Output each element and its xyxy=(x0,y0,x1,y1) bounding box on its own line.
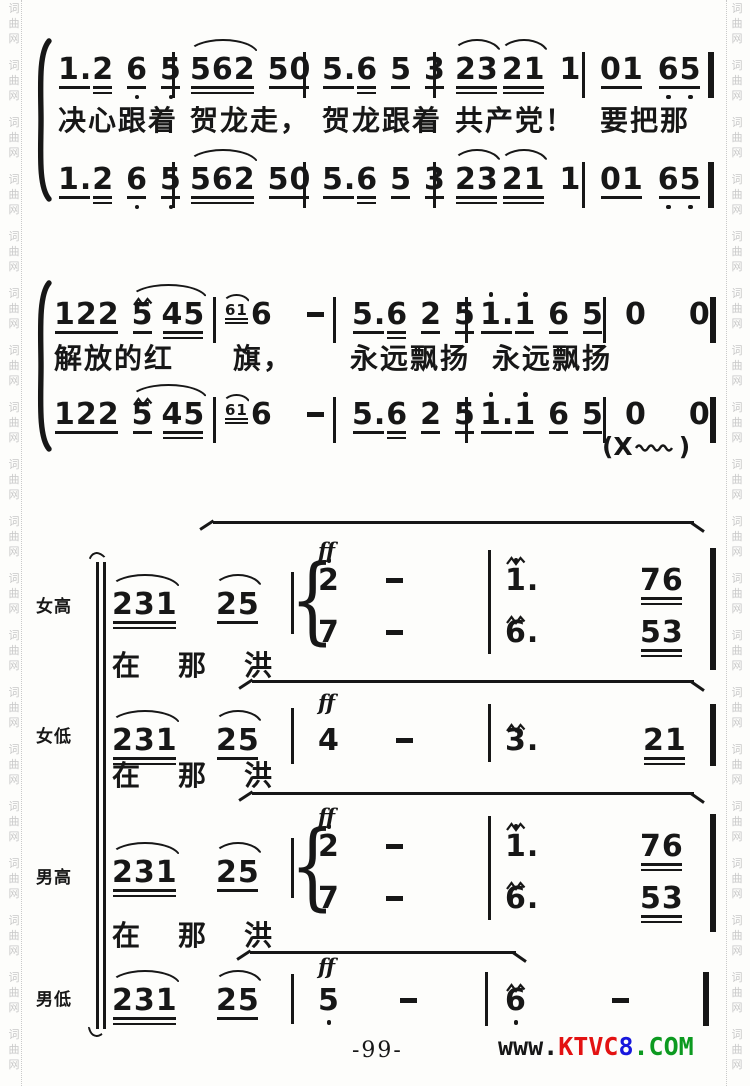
barline xyxy=(433,162,436,208)
phrase-line-right-hook xyxy=(690,680,705,691)
note-digit: 1 xyxy=(480,300,502,330)
watermark-char-left: 词 xyxy=(6,459,22,471)
music-row: 2 5 xyxy=(216,858,260,888)
grace-slur xyxy=(222,394,251,405)
note-digit: 0 xyxy=(290,165,312,195)
watermark-char-right: 曲 xyxy=(729,531,745,543)
watermark-char-right: 网 xyxy=(729,1059,745,1071)
phrase-extension-line xyxy=(252,680,694,683)
watermark-char-right: 网 xyxy=(729,831,745,843)
duration-underline xyxy=(127,86,146,89)
note-text: 5 3 xyxy=(640,881,684,916)
note-digit: 2 xyxy=(112,726,134,756)
note-digit: 2 xyxy=(216,590,238,620)
note-digit: 5 xyxy=(238,590,260,620)
choir-lyric: 在 xyxy=(112,914,140,954)
watermark-char-left: 网 xyxy=(6,1002,22,1014)
note-digit: 6 xyxy=(126,55,148,85)
note-digit: 6 xyxy=(251,400,273,430)
note-digit: 5 xyxy=(318,986,340,1016)
slur-arc xyxy=(187,149,259,165)
duration-underline xyxy=(641,649,682,652)
note-cell: 6 xyxy=(386,400,408,430)
note-cell: 562 xyxy=(190,55,256,85)
grace-underline xyxy=(225,322,248,324)
phrase-extension-line xyxy=(252,792,694,795)
barline xyxy=(96,562,99,1029)
music-row: 00 xyxy=(625,400,711,430)
slur-arc xyxy=(109,574,181,590)
note-cell: 2 xyxy=(92,55,114,85)
note-digit: 5 xyxy=(238,726,260,756)
duration-underline xyxy=(503,92,544,95)
note-group: 545 xyxy=(132,400,206,430)
note-cell: 21 xyxy=(502,165,546,195)
dash-note xyxy=(400,986,417,1003)
note-digit: 1 xyxy=(514,300,536,330)
duration-underline xyxy=(515,431,534,434)
watermark-char-right: 词 xyxy=(729,288,745,300)
duration-underline xyxy=(323,196,354,199)
watermark-char-left: 网 xyxy=(6,318,22,330)
watermark-char-left: 曲 xyxy=(6,702,22,714)
note-digit: 5 xyxy=(238,858,260,888)
note-text: 5. xyxy=(352,397,386,432)
duration-underline xyxy=(456,196,497,199)
note-digit: 5 xyxy=(680,55,702,85)
note-cell: 5. xyxy=(322,165,356,195)
octave-dot-below xyxy=(666,95,671,100)
watermark-char-left: 词 xyxy=(6,972,22,984)
watermark-char-left: 网 xyxy=(6,1059,22,1071)
duration-underline xyxy=(357,196,376,199)
note-cell: 5 xyxy=(132,400,154,430)
octave-dot-below xyxy=(688,95,693,100)
note-cell: 0 1 xyxy=(600,55,644,85)
watermark-char-right: 词 xyxy=(729,459,745,471)
duration-underline xyxy=(421,331,440,334)
watermark-char-left: 词 xyxy=(6,288,22,300)
watermark-char-right: 曲 xyxy=(729,303,745,315)
barline xyxy=(333,297,336,343)
site-watermark-link[interactable]: www.KTVC8.COM xyxy=(498,1032,694,1061)
note-digit: 3 xyxy=(662,884,684,914)
note-digit: 2 xyxy=(455,55,477,85)
watermark-char-right: 词 xyxy=(729,117,745,129)
barline xyxy=(708,52,714,98)
note-text: 5 xyxy=(390,52,412,87)
note-text: 2 5 xyxy=(216,587,260,622)
watermark-char-left: 曲 xyxy=(6,588,22,600)
duration-underline xyxy=(353,431,384,434)
note-cell: 23 xyxy=(455,55,499,85)
grace-notes: 61 xyxy=(225,403,248,418)
barline xyxy=(172,162,175,208)
note-digit: 5 xyxy=(183,400,205,430)
note-digit: . xyxy=(502,400,514,430)
watermark-char-left: 词 xyxy=(6,858,22,870)
note-text: 0 1 xyxy=(600,52,644,87)
note-digit: 6 xyxy=(251,300,273,330)
octave-dot-above xyxy=(489,292,494,297)
grace-note-cell: 616 xyxy=(225,400,273,430)
watermark-char-right: 词 xyxy=(729,573,745,585)
duration-underline xyxy=(387,331,406,334)
barline xyxy=(703,972,709,1026)
duration-underline xyxy=(387,337,406,340)
watermark-char-right: 曲 xyxy=(729,759,745,771)
note-text: 21 xyxy=(502,162,546,197)
watermark-char-right: 网 xyxy=(729,318,745,330)
mordent-icon xyxy=(506,709,526,739)
barline xyxy=(103,562,106,1029)
note-text: 1. xyxy=(58,162,92,197)
watermark-char-left: 曲 xyxy=(6,75,22,87)
note-text: 5. xyxy=(352,297,386,332)
note-digit: 5 xyxy=(582,300,604,330)
phrase-extension-line xyxy=(250,951,516,954)
watermark-char-left: 曲 xyxy=(6,987,22,999)
note-cell: 5 xyxy=(132,300,154,330)
note-digit: 6 xyxy=(662,832,684,862)
note-digit: 0 xyxy=(689,400,711,430)
watermark-char-right: 曲 xyxy=(729,588,745,600)
music-row: 7 xyxy=(318,884,340,914)
choir-lyric: 洪 xyxy=(244,914,272,954)
music-row: 6. xyxy=(505,884,539,914)
note-text: 7 xyxy=(318,881,340,916)
music-row: 5.653 xyxy=(322,165,446,195)
duration-underline xyxy=(456,86,497,89)
note-digit: 2 xyxy=(92,165,114,195)
note-cell: 6 xyxy=(548,300,570,330)
note-text: 2 xyxy=(92,162,114,197)
duration-underline xyxy=(113,627,176,630)
url-www: www. xyxy=(498,1032,558,1061)
watermark-char-left: 网 xyxy=(6,204,22,216)
note-digit: 0 xyxy=(625,400,647,430)
dash-note xyxy=(396,726,413,743)
duration-underline xyxy=(641,597,682,600)
duration-underline xyxy=(353,331,384,334)
note-cell: 2 xyxy=(318,566,340,596)
duration-underline xyxy=(549,431,568,434)
music-row: 5625 0 xyxy=(190,165,311,195)
phrase-extension-line xyxy=(213,521,694,524)
duration-underline xyxy=(387,437,406,440)
duration-underline xyxy=(659,86,700,89)
note-digit: 5 xyxy=(322,165,344,195)
note-text: 6 xyxy=(126,162,148,197)
note-digit: 3 xyxy=(662,618,684,648)
music-row: 0 16 5 xyxy=(600,55,702,85)
duration-underline xyxy=(583,331,602,334)
page-number: -99- xyxy=(352,1038,403,1063)
note-text: 2 xyxy=(92,52,114,87)
watermark-char-right: 网 xyxy=(729,945,745,957)
music-row: 1. xyxy=(505,832,539,862)
duration-underline xyxy=(481,431,512,434)
note-text: 5 xyxy=(582,397,604,432)
note-text: 1 xyxy=(514,397,536,432)
note-cell: 6 xyxy=(356,165,378,195)
duration-underline xyxy=(191,202,254,205)
slur-arc xyxy=(109,842,181,858)
dash-note xyxy=(307,300,324,317)
duration-underline xyxy=(421,431,440,434)
barline xyxy=(708,162,714,208)
dash-glyph xyxy=(386,578,403,583)
mordent-icon xyxy=(506,969,526,999)
note-text: 7 6 xyxy=(640,829,684,864)
octave-dot-below xyxy=(135,95,140,100)
note-cell: 231 xyxy=(112,590,178,620)
phrase-line-right-hook xyxy=(512,951,527,962)
slur-arc xyxy=(109,710,181,726)
octave-dot-below xyxy=(666,205,671,210)
duration-underline xyxy=(641,655,682,658)
duration-underline xyxy=(161,86,180,89)
note-text: 21 xyxy=(502,52,546,87)
watermark-char-left: 词 xyxy=(6,573,22,585)
note-text: 7 6 xyxy=(640,563,684,598)
duration-underline xyxy=(191,196,254,199)
note-cell: 7 6 xyxy=(640,832,684,862)
note-digit: 2 xyxy=(234,165,256,195)
dash-note xyxy=(307,400,324,417)
verse-lyric: 永远飘扬 xyxy=(350,344,470,374)
choir-lyric: 洪 xyxy=(244,644,272,684)
music-row: 1. xyxy=(505,566,539,596)
grace-underline xyxy=(225,418,248,420)
watermark-char-left: 网 xyxy=(6,831,22,843)
note-digit: 5 xyxy=(160,55,182,85)
note-digit: 3 xyxy=(134,726,156,756)
note-digit: 5 xyxy=(390,165,412,195)
music-row: 6. xyxy=(505,618,539,648)
phrase-line-right-hook xyxy=(690,792,705,803)
music-row: 2 1 xyxy=(643,726,687,756)
watermark-char-right: 网 xyxy=(729,90,745,102)
watermark-char-right: 词 xyxy=(729,174,745,186)
duration-underline xyxy=(549,331,568,334)
note-text: 231 xyxy=(112,983,178,1018)
watermark-char-right: 词 xyxy=(729,858,745,870)
note-digit: 6 xyxy=(662,566,684,596)
slur-arc xyxy=(499,149,549,165)
note-text: 6 xyxy=(356,52,378,87)
note-cell: 5 3 xyxy=(640,884,684,914)
note-cell: 231 xyxy=(112,726,178,756)
note-cell: 5 xyxy=(318,986,340,1016)
note-digit: 7 xyxy=(318,884,340,914)
note-digit: 1 xyxy=(560,55,582,85)
watermark-char-left: 网 xyxy=(6,660,22,672)
note-cell: 1 xyxy=(514,400,536,430)
octave-dot-below xyxy=(514,1020,519,1025)
note-cell: 1. xyxy=(58,165,92,195)
duration-underline xyxy=(59,196,90,199)
choir-lyric: 洪 xyxy=(244,754,272,794)
watermark-char-right: 网 xyxy=(729,603,745,615)
music-row xyxy=(396,726,413,743)
duration-underline xyxy=(191,92,254,95)
octave-dot-above xyxy=(514,824,519,829)
watermark-char-right: 词 xyxy=(729,516,745,528)
note-digit: 5 xyxy=(680,165,702,195)
barline xyxy=(213,297,216,343)
music-row: 231 xyxy=(112,858,178,888)
music-row: 5.625 xyxy=(352,300,476,330)
note-cell: 6 xyxy=(386,300,408,330)
right-dotted-rule xyxy=(726,0,727,1086)
octave-dot-below xyxy=(327,1020,332,1025)
dash-note xyxy=(612,986,629,1003)
percussion-x-close: ) xyxy=(679,432,690,461)
watermark-char-left: 网 xyxy=(6,432,22,444)
note-digit: . xyxy=(502,300,514,330)
note-digit: 2 xyxy=(98,300,120,330)
duration-underline xyxy=(481,331,512,334)
watermark-char-left: 词 xyxy=(6,231,22,243)
note-cell: 45 xyxy=(162,300,206,330)
note-cell: 6 5 xyxy=(658,165,702,195)
note-text: 5 xyxy=(582,297,604,332)
watermark-char-left: 曲 xyxy=(6,132,22,144)
note-cell: 2 5 xyxy=(216,986,260,1016)
note-digit: 3 xyxy=(134,590,156,620)
verse-lyric: 贺龙走， xyxy=(190,106,310,136)
grace-underline xyxy=(225,422,248,424)
watermark-char-right: 曲 xyxy=(729,132,745,144)
duration-underline xyxy=(163,337,204,340)
watermark-char-left: 曲 xyxy=(6,816,22,828)
note-cell: 5. xyxy=(352,400,386,430)
duration-underline xyxy=(113,895,176,898)
note-digit: 1 xyxy=(480,400,502,430)
watermark-char-right: 曲 xyxy=(729,702,745,714)
dash-glyph xyxy=(307,312,324,317)
note-digit: 6 xyxy=(356,165,378,195)
note-digit: 2 xyxy=(112,858,134,888)
note-digit: 5 xyxy=(190,55,212,85)
note-text: 2 xyxy=(318,829,340,864)
watermark-char-right: 网 xyxy=(729,660,745,672)
barline xyxy=(488,704,491,762)
url-com: .COM xyxy=(634,1032,694,1061)
barline xyxy=(303,52,306,98)
watermark-char-left: 网 xyxy=(6,888,22,900)
note-digit: . xyxy=(344,165,356,195)
voice-label: 女高 xyxy=(36,592,72,617)
music-row xyxy=(386,832,403,849)
barline xyxy=(172,52,175,98)
watermark-char-left: 网 xyxy=(6,717,22,729)
slur-arc xyxy=(109,970,181,986)
note-text: 1 xyxy=(560,162,582,197)
music-row: 7 6 xyxy=(640,566,684,596)
note-cell: 7 xyxy=(318,618,340,648)
duration-underline xyxy=(163,437,204,440)
note-text: 0 xyxy=(689,297,711,332)
note-digit: 2 xyxy=(420,400,442,430)
note-digit: 0 xyxy=(600,55,622,85)
note-digit: . xyxy=(527,884,539,914)
dash-glyph xyxy=(612,998,629,1003)
watermark-char-left: 曲 xyxy=(6,18,22,30)
duration-underline xyxy=(133,331,152,334)
note-cell: 2 xyxy=(420,300,442,330)
barline xyxy=(465,297,468,343)
note-text: 1. xyxy=(58,52,92,87)
note-text: 5 xyxy=(318,983,340,1018)
music-row: 616 xyxy=(225,300,324,330)
note-digit: 5 xyxy=(640,618,662,648)
note-cell: 23 xyxy=(455,165,499,195)
mordent-icon xyxy=(506,808,526,838)
duration-underline xyxy=(391,86,410,89)
watermark-char-right: 词 xyxy=(729,687,745,699)
note-cell: 2 5 xyxy=(216,858,260,888)
watermark-char-right: 网 xyxy=(729,375,745,387)
note-digit: 3 xyxy=(134,986,156,1016)
watermark-char-left: 词 xyxy=(6,801,22,813)
note-cell: 1. xyxy=(58,55,92,85)
note-cell: 6 5 xyxy=(658,55,702,85)
note-text: 2 5 xyxy=(216,983,260,1018)
watermark-char-left: 曲 xyxy=(6,930,22,942)
note-text: 4 xyxy=(318,723,340,758)
note-digit: 5 xyxy=(352,400,374,430)
percussion-x-open: (X xyxy=(602,432,633,461)
note-cell: 1 xyxy=(514,300,536,330)
verse-lyric: 要把那 xyxy=(600,106,690,136)
duration-underline xyxy=(217,889,258,892)
note-cell: 1 2 2 xyxy=(54,400,120,430)
note-cell: 1. xyxy=(480,300,514,330)
watermark-char-right: 曲 xyxy=(729,930,745,942)
watermark-char-right: 网 xyxy=(729,432,745,444)
watermark-char-left: 曲 xyxy=(6,645,22,657)
note-cell: 5 xyxy=(160,55,182,85)
duration-underline xyxy=(163,431,204,434)
wavy-line-icon xyxy=(633,440,679,454)
duration-underline xyxy=(113,621,176,624)
note-digit: 0 xyxy=(625,300,647,330)
dash-glyph xyxy=(386,630,403,635)
watermark-char-left: 网 xyxy=(6,489,22,501)
note-digit: 1 xyxy=(58,55,80,85)
voice-label: 女低 xyxy=(36,722,72,747)
choir-lyric: 那 xyxy=(178,754,206,794)
barline xyxy=(710,397,716,443)
note-cell: 2 xyxy=(318,832,340,862)
music-row: 231 xyxy=(112,726,178,756)
watermark-char-right: 网 xyxy=(729,717,745,729)
duration-underline xyxy=(644,757,685,760)
slur-arc xyxy=(452,39,502,55)
note-digit: 1 xyxy=(54,300,76,330)
note-text: 6 5 xyxy=(658,52,702,87)
note-digit: 5 xyxy=(582,400,604,430)
note-text: 6 xyxy=(386,297,408,332)
note-cell: 5 xyxy=(390,165,412,195)
duration-underline xyxy=(503,196,544,199)
duration-underline xyxy=(93,196,112,199)
note-digit: 5 xyxy=(160,165,182,195)
note-digit: 2 xyxy=(643,726,665,756)
music-row: 231 xyxy=(112,590,178,620)
